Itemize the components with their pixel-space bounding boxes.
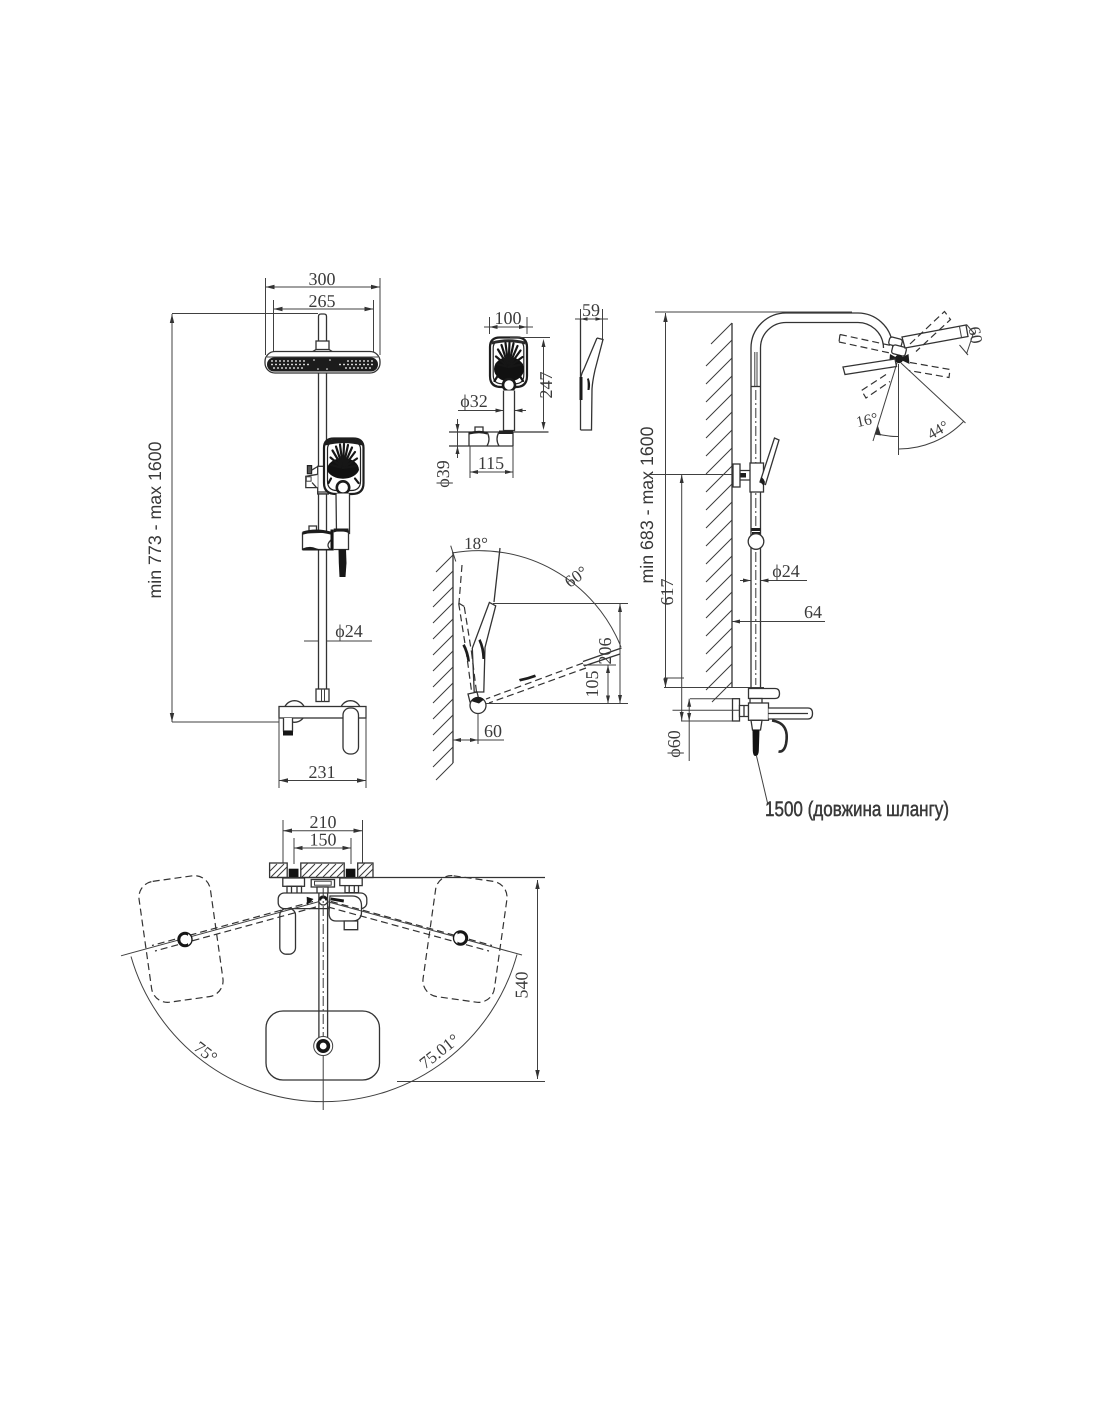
svg-text:247: 247 [536, 372, 556, 399]
svg-text:300: 300 [309, 269, 336, 289]
svg-text:60: 60 [965, 325, 987, 345]
svg-text:105: 105 [582, 671, 602, 698]
svg-text:ϕ32: ϕ32 [460, 391, 487, 411]
svg-text:ϕ24: ϕ24 [335, 621, 362, 641]
svg-text:100: 100 [495, 308, 522, 328]
svg-text:206: 206 [595, 638, 615, 665]
svg-text:540: 540 [512, 972, 532, 999]
svg-text:60: 60 [484, 721, 502, 741]
svg-text:150: 150 [310, 830, 337, 850]
svg-text:617: 617 [657, 579, 677, 606]
svg-text:265: 265 [309, 291, 336, 311]
svg-text:min 773 - max 1600: min 773 - max 1600 [145, 442, 165, 599]
svg-text:231: 231 [309, 762, 336, 782]
svg-text:min 683 - max 1600: min 683 - max 1600 [637, 427, 657, 584]
svg-text:115: 115 [478, 453, 504, 473]
svg-text:ϕ24: ϕ24 [772, 561, 799, 581]
svg-text:59: 59 [582, 300, 600, 320]
svg-text:64: 64 [804, 602, 822, 622]
svg-text:18°: 18° [464, 534, 488, 553]
svg-text:ϕ60: ϕ60 [664, 730, 684, 757]
svg-text:1500 (довжина шлангу): 1500 (довжина шлангу) [765, 798, 949, 821]
svg-text:ϕ39: ϕ39 [433, 460, 453, 487]
